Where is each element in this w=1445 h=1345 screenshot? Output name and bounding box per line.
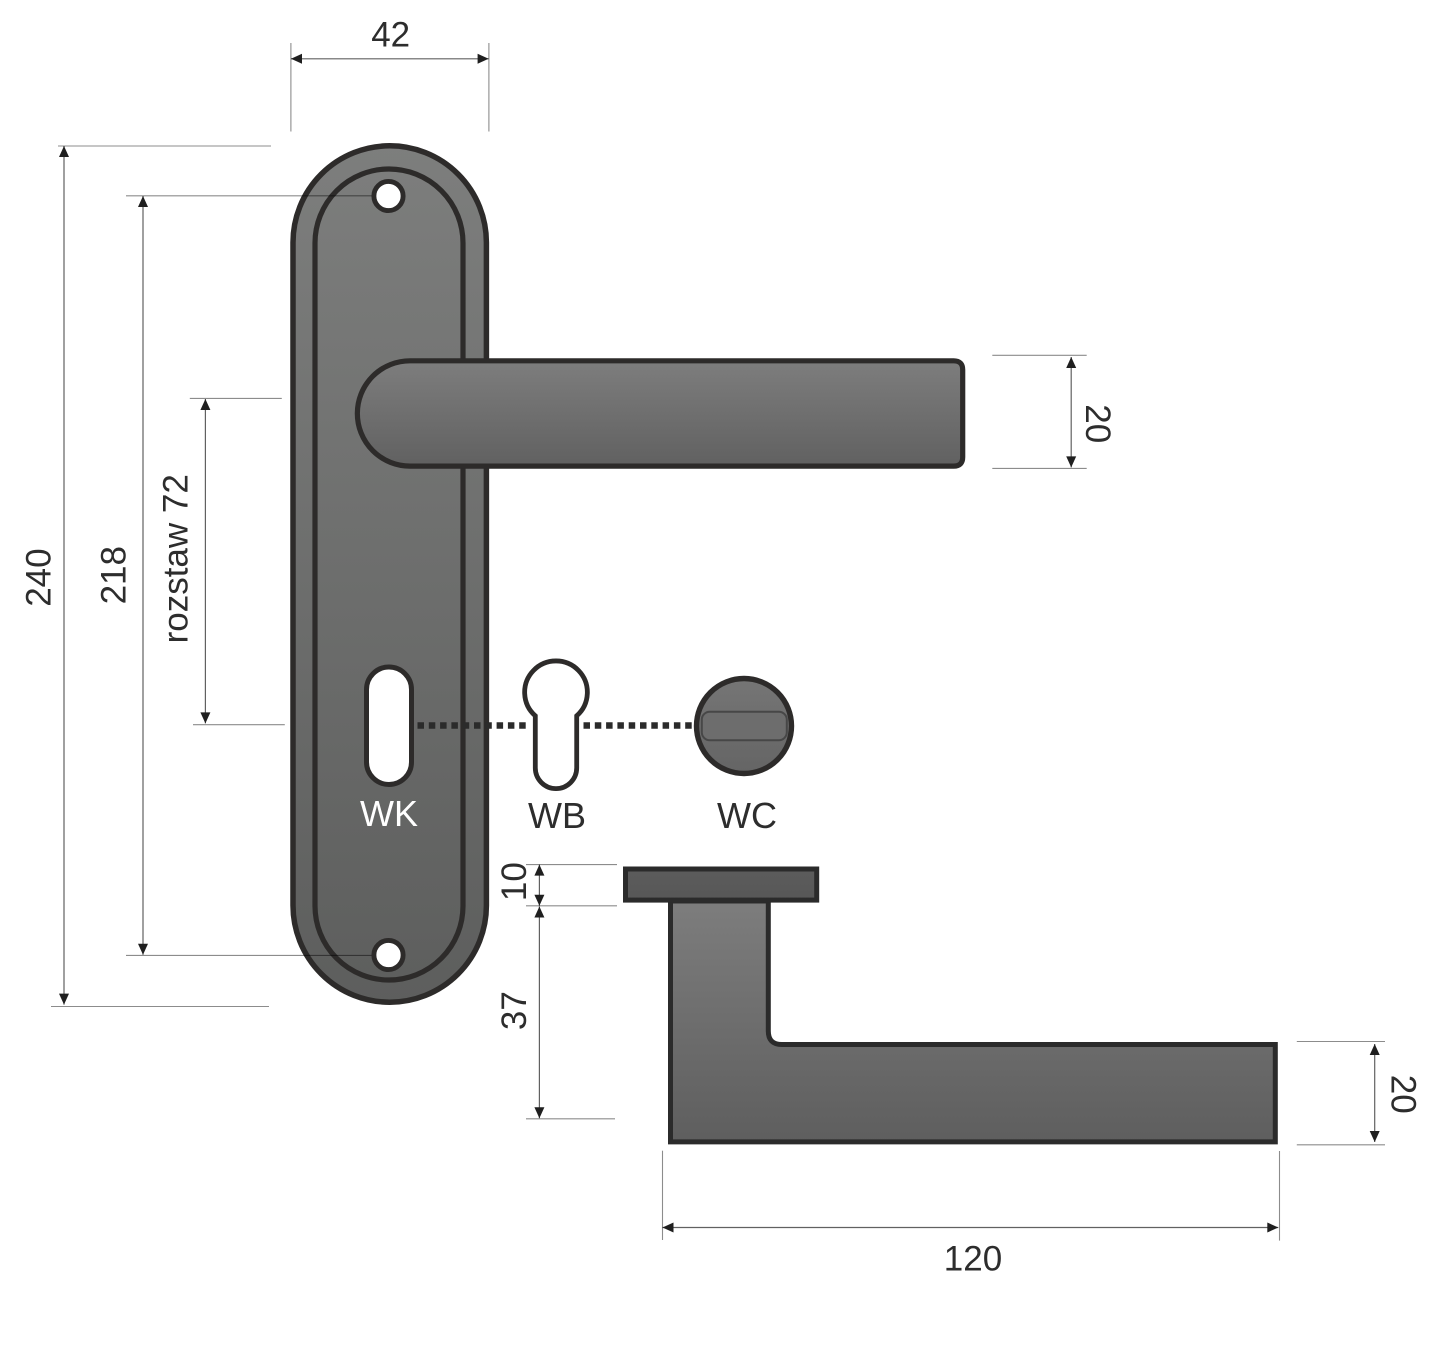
svg-text:37: 37 [495,991,534,1030]
svg-text:20: 20 [1383,1075,1422,1114]
svg-text:WB: WB [528,795,586,836]
svg-text:120: 120 [944,1240,1002,1279]
svg-text:20: 20 [1078,404,1117,443]
svg-text:42: 42 [371,15,410,54]
svg-text:10: 10 [495,862,534,901]
svg-text:WC: WC [717,795,777,836]
svg-text:rozstaw 72: rozstaw 72 [157,474,196,643]
svg-text:218: 218 [95,546,134,604]
svg-text:240: 240 [20,548,59,606]
svg-text:WK: WK [360,793,418,834]
